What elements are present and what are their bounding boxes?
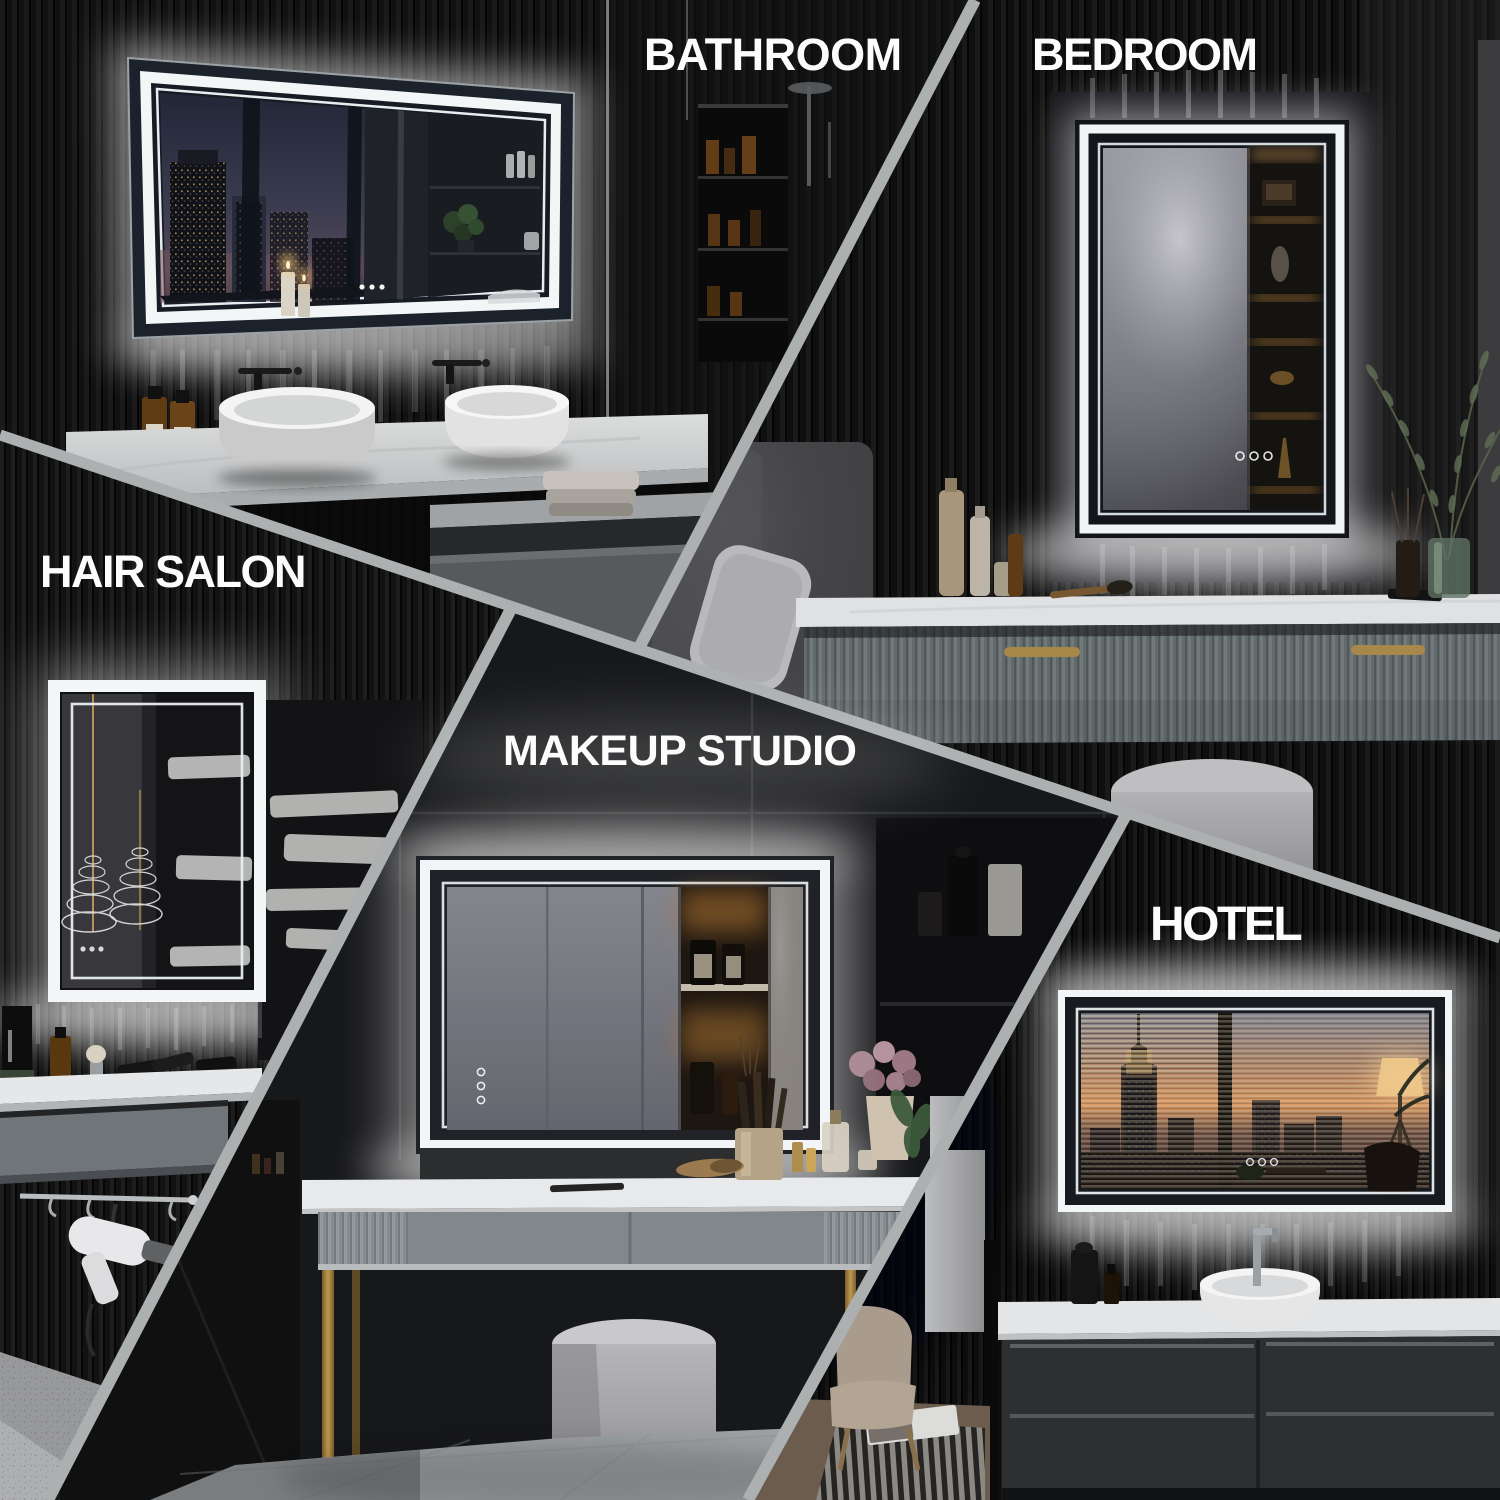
svg-text:HOTEL: HOTEL xyxy=(1150,898,1301,951)
svg-text:BEDROOM: BEDROOM xyxy=(1032,29,1257,80)
svg-text:BATHROOM: BATHROOM xyxy=(644,29,902,80)
svg-text:HAIR SALON: HAIR SALON xyxy=(40,546,305,597)
svg-text:MAKEUP STUDIO: MAKEUP STUDIO xyxy=(503,727,856,775)
